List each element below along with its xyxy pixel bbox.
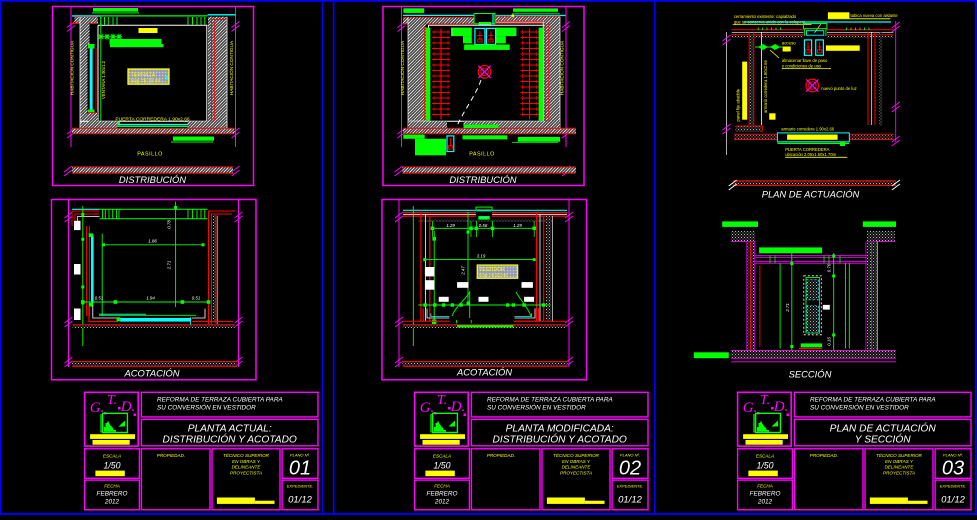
- svg-text:1.86: 1.86: [148, 239, 157, 244]
- svg-text:TÉCNICO SUPERIOR: TÉCNICO SUPERIOR: [553, 452, 600, 458]
- svg-text:2012: 2012: [757, 499, 773, 506]
- svg-text:EXPEDIENTE.: EXPEDIENTE.: [287, 483, 313, 488]
- svg-text:Sup.=8.02 m²: Sup.=8.02 m²: [479, 273, 508, 279]
- svg-text:nuevo punto de luz: nuevo punto de luz: [821, 86, 856, 91]
- svg-text:HABITACIÓN CONTIGUA: HABITACIÓN CONTIGUA: [559, 40, 565, 95]
- svg-text:2.47: 2.47: [461, 266, 466, 276]
- svg-text:y condiciones de uso: y condiciones de uso: [782, 63, 822, 68]
- svg-text:0.56: 0.56: [479, 223, 488, 228]
- svg-text:T.: T.: [760, 393, 770, 408]
- svg-text:FEBRERO: FEBRERO: [427, 491, 458, 498]
- svg-text:DELINEANTE: DELINEANTE: [232, 465, 262, 470]
- svg-text:FECHA: FECHA: [757, 484, 773, 489]
- svg-text:PROPIEDAD.: PROPIEDAD.: [487, 453, 515, 458]
- svg-text:EXPEDIENTE.: EXPEDIENTE.: [940, 483, 966, 488]
- svg-text:EN OBRAS Y: EN OBRAS Y: [562, 459, 591, 464]
- svg-text:2.71: 2.71: [785, 303, 790, 313]
- svg-text:0.16: 0.16: [827, 337, 832, 346]
- svg-text:SU CONVERSIÓN EN VESTIDOR: SU CONVERSIÓN EN VESTIDOR: [487, 403, 586, 412]
- svg-text:DISTRIBUCIÓN Y ACOTADO: DISTRIBUCIÓN Y ACOTADO: [163, 433, 297, 446]
- svg-text:DISTRIBUCIÓN: DISTRIBUCIÓN: [119, 174, 186, 185]
- svg-text:ESCALA: ESCALA: [433, 453, 451, 458]
- svg-text:PROYECTISTA: PROYECTISTA: [883, 470, 915, 475]
- svg-text:FEBRERO: FEBRERO: [97, 491, 128, 498]
- svg-text:PUERTA CORREDERA 1.90x2.66: PUERTA CORREDERA 1.90x2.66: [115, 117, 190, 123]
- svg-text:armario corredera 1.90x2.66: armario corredera 1.90x2.66: [781, 126, 835, 131]
- svg-text:01: 01: [289, 458, 311, 480]
- svg-text:EN OBRAS Y: EN OBRAS Y: [232, 459, 261, 464]
- svg-text:ESCALA: ESCALA: [756, 453, 774, 458]
- svg-text:0.51: 0.51: [192, 296, 201, 301]
- svg-text:0.78: 0.78: [167, 220, 172, 229]
- svg-text:SU CONVERSIÓN EN VESTIDOR: SU CONVERSIÓN EN VESTIDOR: [810, 403, 909, 412]
- svg-text:1.29: 1.29: [446, 223, 455, 228]
- svg-text:TERRAZA: TERRAZA: [131, 72, 156, 78]
- svg-text:panel fijo abatible: panel fijo abatible: [736, 88, 741, 121]
- svg-text:ACOTACIÓN: ACOTACIÓN: [123, 368, 179, 379]
- svg-text:acceso: acceso: [782, 41, 796, 46]
- svg-text:REFORMA DE TERRAZA CUBIERTA PA: REFORMA DE TERRAZA CUBIERTA PARA: [157, 397, 283, 404]
- svg-text:PROPIEDAD.: PROPIEDAD.: [810, 453, 838, 458]
- svg-text:FEBRERO: FEBRERO: [750, 491, 781, 498]
- svg-text:SU CONVERSIÓN EN VESTIDOR: SU CONVERSIÓN EN VESTIDOR: [157, 403, 256, 412]
- svg-text:ACOTACIÓN: ACOTACIÓN: [456, 367, 512, 378]
- svg-text:FECHA: FECHA: [104, 484, 120, 489]
- svg-text:REFORMA DE TERRAZA CUBIERTA PA: REFORMA DE TERRAZA CUBIERTA PARA: [810, 397, 936, 404]
- svg-text:TÉCNICO SUPERIOR: TÉCNICO SUPERIOR: [876, 452, 923, 458]
- svg-text:1/50: 1/50: [103, 461, 120, 471]
- svg-text:TÉCNICO SUPERIOR: TÉCNICO SUPERIOR: [223, 452, 270, 458]
- svg-text:VESTIDOR: VESTIDOR: [479, 267, 505, 273]
- svg-text:EXPEDIENTE.: EXPEDIENTE.: [617, 483, 643, 488]
- svg-text:DELINEANTE: DELINEANTE: [562, 465, 592, 470]
- svg-text:PLAN DE ACTUACIÓN: PLAN DE ACTUACIÓN: [830, 422, 937, 435]
- svg-text:HABITACIÓN CONTIGUA: HABITACIÓN CONTIGUA: [399, 40, 405, 95]
- svg-text:SECCIÓN: SECCIÓN: [789, 369, 832, 380]
- svg-text:REFORMA DE TERRAZA CUBIERTA PA: REFORMA DE TERRAZA CUBIERTA PARA: [487, 397, 613, 404]
- svg-text:DISTRIBUCIÓN: DISTRIBUCIÓN: [449, 174, 516, 185]
- svg-text:DISTRIBUCIÓN Y ACOTADO: DISTRIBUCIÓN Y ACOTADO: [493, 433, 627, 446]
- svg-text:ubicación 2.05x1.50x1.70m: ubicación 2.05x1.50x1.70m: [785, 152, 836, 157]
- svg-text:cerramiento existente: capialz: cerramiento existente: capialzado: [734, 14, 797, 19]
- svg-text:2012: 2012: [434, 499, 450, 506]
- svg-text:ESCALA: ESCALA: [103, 453, 121, 458]
- svg-text:PUERTA CORREDERA: PUERTA CORREDERA: [785, 147, 829, 152]
- svg-text:01/12: 01/12: [618, 495, 642, 506]
- svg-text:PASILLO: PASILLO: [137, 152, 163, 158]
- svg-text:VENTANA 1.90x1.2: VENTANA 1.90x1.2: [101, 60, 106, 99]
- svg-text:3.19: 3.19: [477, 253, 486, 258]
- svg-text:PLAN DE ACTUACIÓN: PLAN DE ACTUACIÓN: [762, 189, 860, 200]
- svg-text:almacenar llave de paso: almacenar llave de paso: [782, 58, 828, 63]
- svg-text:0.76: 0.76: [827, 263, 832, 272]
- svg-text:Y SECCIÓN: Y SECCIÓN: [855, 433, 911, 446]
- svg-text:1/50: 1/50: [756, 461, 773, 471]
- svg-text:armario corredera 1.90x2.66: armario corredera 1.90x2.66: [763, 59, 768, 113]
- svg-text:PLANTA ACTUAL:: PLANTA ACTUAL:: [188, 424, 272, 435]
- svg-text:DELINEANTE: DELINEANTE: [885, 465, 915, 470]
- svg-text:2012: 2012: [104, 499, 120, 506]
- svg-text:PROYECTISTA: PROYECTISTA: [560, 470, 592, 475]
- svg-text:HABITACIÓN CONTIGUA: HABITACIÓN CONTIGUA: [69, 40, 75, 95]
- svg-text:1.29: 1.29: [513, 223, 522, 228]
- svg-text:1/50: 1/50: [433, 461, 450, 471]
- svg-text:01/12: 01/12: [288, 495, 312, 506]
- svg-text:HABITACIÓN CONTIGUA: HABITACIÓN CONTIGUA: [228, 40, 234, 95]
- svg-text:PASILLO: PASILLO: [469, 152, 495, 158]
- svg-text:03: 03: [942, 458, 964, 480]
- svg-text:PROYECTISTA: PROYECTISTA: [230, 470, 262, 475]
- svg-text:0.51: 0.51: [95, 296, 104, 301]
- svg-text:PROPIEDAD.: PROPIEDAD.: [157, 453, 185, 458]
- svg-text:Sup.=8.19 m²: Sup.=8.19 m²: [131, 79, 161, 85]
- svg-text:FECHA: FECHA: [434, 484, 450, 489]
- svg-text:EN OBRAS Y: EN OBRAS Y: [885, 459, 914, 464]
- svg-text:PLANTA MODIFICADA:: PLANTA MODIFICADA:: [506, 424, 614, 435]
- svg-text:T.: T.: [437, 393, 447, 408]
- svg-text:02: 02: [619, 458, 641, 480]
- svg-text:2.71: 2.71: [167, 260, 172, 270]
- svg-text:tabica nueva con aislante: tabica nueva con aislante: [851, 13, 899, 18]
- svg-text:T.: T.: [107, 393, 117, 408]
- svg-text:01/12: 01/12: [941, 495, 965, 506]
- svg-text:1.94: 1.94: [146, 296, 155, 301]
